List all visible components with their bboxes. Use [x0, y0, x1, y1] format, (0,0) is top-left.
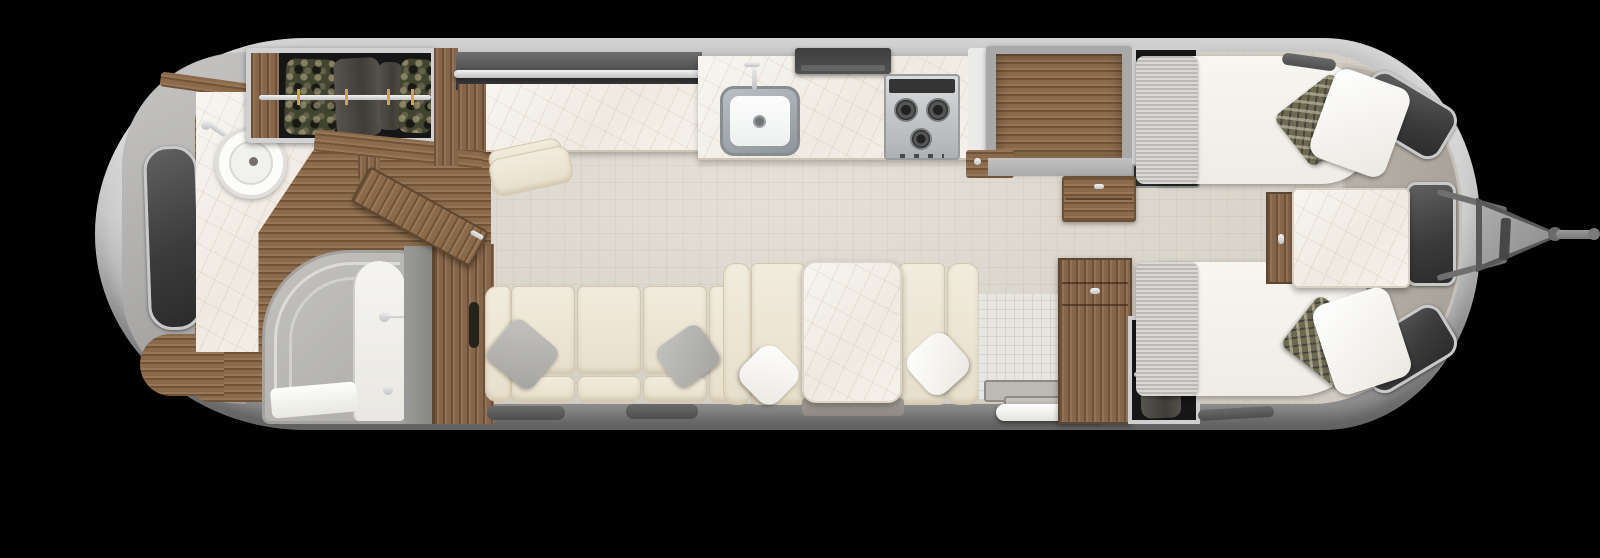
cooktop	[884, 74, 960, 160]
ledge-fitting-1	[974, 158, 981, 165]
fridge-end-panel	[968, 48, 988, 162]
galley-faucet	[752, 64, 757, 90]
dresser-top-groove	[1066, 198, 1132, 200]
bath-faucet-base	[201, 120, 211, 130]
hanger-hook-4	[411, 89, 414, 105]
shower-pan	[353, 261, 405, 421]
dresser-bottom-groove-1	[1062, 282, 1128, 284]
galley-faucet-spout	[744, 62, 760, 67]
dinette-table	[802, 261, 902, 403]
rear-wardrobe	[246, 48, 436, 143]
hanger-hook-3	[387, 89, 390, 105]
sofa-seat-cushion-2	[577, 376, 641, 402]
bathroom-side-window	[143, 145, 203, 331]
range-hood	[795, 48, 891, 74]
burner-front	[910, 128, 932, 150]
wall-hatch-2	[626, 404, 698, 419]
galley-sink-drain	[753, 115, 766, 128]
dresser-top-handle	[1094, 184, 1104, 189]
bedroom-dresser-wardrobe-bottom	[1058, 258, 1132, 424]
refrigerator-top-face	[996, 54, 1122, 160]
entry-door-handle	[470, 229, 485, 240]
bedroom-counter-strip	[988, 158, 1138, 176]
desk-side-column	[434, 48, 458, 166]
dresser-top	[1062, 176, 1136, 222]
pocket-door-handle	[469, 302, 479, 348]
sink-drain	[249, 157, 258, 166]
hitch-a-frame	[1482, 203, 1556, 267]
burner-right	[926, 98, 950, 122]
nightstand-marble-top	[1292, 188, 1410, 288]
wall-hatch-1	[487, 406, 565, 420]
floor-plan-stage	[0, 0, 1600, 558]
hanger-hook-1	[297, 89, 300, 105]
nightstand-handle	[1278, 234, 1284, 244]
range-hood-vent	[801, 65, 885, 71]
shower-control	[383, 385, 393, 395]
sofa-back-cushion-2	[577, 286, 641, 374]
cooktop-knobs	[900, 154, 944, 158]
burner-left	[894, 98, 918, 122]
hitch-bar-end	[1588, 228, 1600, 240]
desk-marble-top	[486, 84, 702, 152]
bath-partition-edge	[404, 246, 434, 424]
hanger-hook-2	[345, 89, 348, 105]
twin-bed-bottom-blanket	[1136, 262, 1198, 396]
dresser-bottom-handle	[1090, 288, 1100, 294]
cooktop-back-band	[889, 79, 955, 93]
twin-bed-top-blanket	[1136, 56, 1198, 184]
galley-sink	[720, 86, 800, 156]
desk-chrome-rail	[454, 70, 704, 78]
dresser-bottom-groove-2	[1062, 304, 1128, 306]
